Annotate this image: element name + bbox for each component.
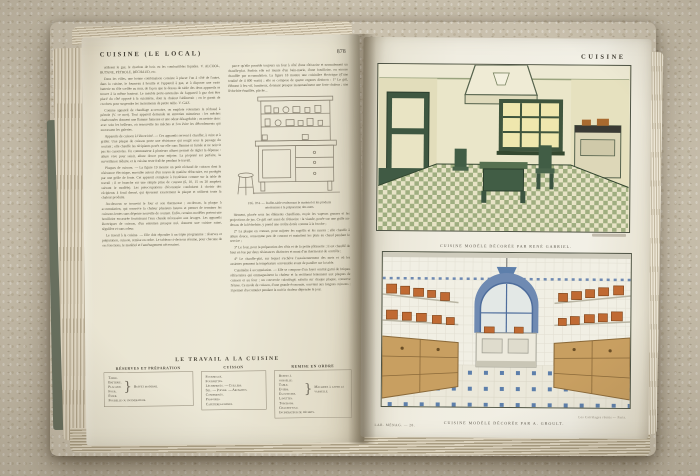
running-title-right: CUISINE [581,53,626,61]
left-page-header: CUISINE (LE LOCAL) 878 [100,47,346,60]
paragraph: blement, placée sous les éléments chauff… [230,211,350,227]
paragraph: 4° Le chauffe-plat, sur lequel s'achève … [230,256,350,267]
printers-signature: LAR. MÉNAG. — 28. [374,412,455,431]
text-columns: utilisent le gaz, le charbon de bois ou … [100,62,352,359]
photo-of-open-book: CUISINE (LE LOCAL) 878 utilisent le gaz,… [0,0,700,476]
running-title-left: CUISINE (LE LOCAL) [100,49,203,58]
illustration-green-kitchen [376,63,631,233]
worktable-col-cuisson: CUISSON Fourneaux. Fournettes. Lèchefrit… [201,364,267,410]
photo-credit-smudge [592,234,626,237]
worktable-item: Incinérateur de déchets. [279,409,347,414]
blue-kitchen-image [382,252,631,408]
worktable-note: Machines à laver la vaisselle. [314,384,347,393]
worktable-box: Fourneaux. Fournettes. Lèchefrites. — Cu… [201,370,267,410]
figure-caption-line2: nécessaires à la préparation des mets. [230,205,350,211]
worktable-item: Poubelle ou incinérateur. [108,398,188,404]
paragraph: Le travail à la cuisine. — Elle doit rép… [102,232,222,248]
brace-glyph: } [304,383,312,395]
worktable-box: Table. Batterie. Placard. Four. Évier. }… [104,371,194,406]
text-column-2: parce qu'elle possède toujours un four à… [228,62,351,294]
green-kitchen-image [377,64,630,232]
right-page: CUISINE [360,37,651,439]
worktable-col-header: CUISSON [201,364,266,369]
page-number-left: 878 [337,47,346,55]
worktable-items: Buffet à vaisselle. Table. Éviers. Égout… [279,374,303,406]
paragraph: 3° Le four, pour la préparation des rôti… [230,244,350,255]
paragraph: Dans les villes, une bonne combinaison c… [100,75,220,106]
paragraph: Cuisinière à accumulation. — Elle se com… [230,267,350,293]
worktable-box: Buffet à vaisselle. Table. Éviers. Égout… [274,369,352,418]
paragraph: Au-dessous se trouvent le four et son th… [102,201,222,232]
worktable-col-header: REMISE EN ORDRE [274,363,351,368]
text-column-1: utilisent le gaz, le charbon de bois ou … [100,64,223,296]
worktable-col-header: RÉSERVES ET PRÉPARATION [104,365,193,371]
paragraph: Comme appareil de chauffage accessoire, … [100,107,220,133]
worktable-col-reserves: RÉSERVES ET PRÉPARATION Table. Batterie.… [104,365,194,406]
paragraph: utilisent le gaz, le charbon de bois ou … [100,64,220,75]
left-page: CUISINE (LE LOCAL) 878 utilisent le gaz,… [82,34,365,445]
paragraph: Appareils de cuisson à l'électricité. — … [101,133,221,164]
worktable-section: LE TRAVAIL A LA CUISINE RÉSERVES ET PRÉP… [103,354,352,431]
buffet-line-drawing [232,94,346,201]
right-page-header: CUISINE [536,51,625,62]
worktable-col-remise: REMISE EN ORDRE Buffet à vaisselle. Tabl… [274,363,352,418]
paragraph: parce qu'elle possède toujours un four à… [228,62,348,93]
paragraph: Plaques de cuisson. — La figure 19 montr… [101,164,221,200]
brace-glyph: } [124,381,132,393]
figure-874-buffet-drawing: FIG. 874. — Buffet-table renfermant le m… [228,94,349,211]
worktable-items: Table. Batterie. Placard. Four. Évier. [108,376,122,399]
worktable-note: Buffet moderne. [134,384,173,389]
paragraph: 2° La plaque en creuset, pour mijoter le… [230,228,350,244]
illustration-blue-kitchen [381,251,632,409]
